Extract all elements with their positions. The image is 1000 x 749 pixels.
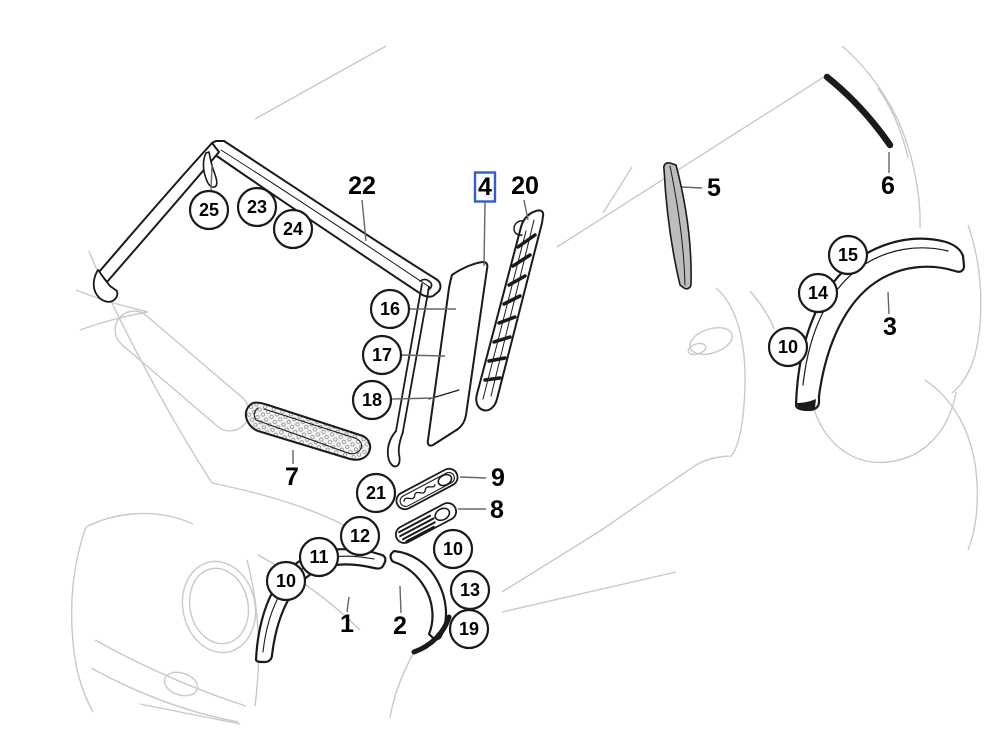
cowl-line xyxy=(255,46,386,119)
part-label-5[interactable]: 5 xyxy=(707,174,721,202)
callout-balloon-16[interactable]: 16 xyxy=(371,290,409,328)
roof-line xyxy=(557,75,827,247)
callout-balloon-21[interactable]: 21 xyxy=(357,474,395,512)
window-edge xyxy=(603,167,632,213)
part-number[interactable]: 8 xyxy=(490,496,504,524)
part-number[interactable]: 20 xyxy=(511,172,539,200)
callout-balloon-10[interactable]: 10 xyxy=(267,562,305,600)
balloon-number: 25 xyxy=(199,200,219,220)
leader-9 xyxy=(460,477,486,478)
fender-front-edge xyxy=(247,560,258,706)
callout-balloon-14[interactable]: 14 xyxy=(799,274,837,312)
part-7-hood-grille[interactable] xyxy=(246,403,370,460)
leader-2 xyxy=(400,586,401,613)
part-20-inner-2 xyxy=(483,231,526,399)
balloon-number: 14 xyxy=(808,283,828,303)
callout-balloon-11[interactable]: 11 xyxy=(300,538,338,576)
part-number[interactable]: 6 xyxy=(881,172,895,200)
balloon-number: 15 xyxy=(838,245,858,265)
balloon-number: 13 xyxy=(460,580,480,600)
balloon-number: 17 xyxy=(372,345,392,365)
balloon-number: 12 xyxy=(350,526,370,546)
parts-artwork xyxy=(94,77,964,662)
part-number[interactable]: 4 xyxy=(478,173,492,201)
part-label-2[interactable]: 2 xyxy=(393,612,407,640)
part-number[interactable]: 2 xyxy=(393,612,407,640)
parts-diagram-page: 2523241617182112111010131915141022420563… xyxy=(0,0,1000,749)
part-number[interactable]: 22 xyxy=(348,172,376,200)
rear-corner-edge xyxy=(925,380,977,550)
balloon-number: 11 xyxy=(309,547,328,567)
part-label-4[interactable]: 4 xyxy=(475,173,495,202)
callout-balloon-23[interactable]: 23 xyxy=(238,188,276,226)
part-number[interactable]: 3 xyxy=(883,313,897,341)
sill-line-lower xyxy=(502,572,676,612)
rear-window-edge xyxy=(878,88,908,158)
annotations-layer: 2523241617182112111010131915141022420563… xyxy=(190,172,897,648)
arch-lower-line xyxy=(390,652,414,718)
callout-balloon-19[interactable]: 19 xyxy=(450,610,488,648)
balloon-number: 10 xyxy=(443,539,463,559)
callout-balloon-24[interactable]: 24 xyxy=(274,210,312,248)
grille-line xyxy=(140,704,240,724)
part-number[interactable]: 7 xyxy=(285,463,299,491)
callout-balloon-13[interactable]: 13 xyxy=(451,571,489,609)
part-20-inner-1 xyxy=(491,220,534,396)
part-label-22[interactable]: 22 xyxy=(348,172,376,200)
part-6-c-pillar-trim[interactable] xyxy=(827,77,890,145)
part-3-rear-arch-trim[interactable] xyxy=(796,239,964,410)
leader-4 xyxy=(484,202,485,266)
rear-wheel-opening xyxy=(812,392,956,462)
balloon-number: 21 xyxy=(366,483,386,503)
rocker-line xyxy=(600,456,729,531)
door-trailing-edge xyxy=(716,288,745,457)
balloon-number: 18 xyxy=(362,390,382,410)
callout-balloon-15[interactable]: 15 xyxy=(829,236,867,274)
part-label-7[interactable]: 7 xyxy=(285,463,299,491)
hood-scoop-recess xyxy=(107,303,256,438)
part-17-strip-foot xyxy=(388,431,403,466)
leader-18 xyxy=(391,398,435,399)
balloon-number: 16 xyxy=(380,299,400,319)
sill-line-upper xyxy=(502,531,600,592)
leader-5 xyxy=(682,187,702,188)
callout-balloon-25[interactable]: 25 xyxy=(190,191,228,229)
part-number[interactable]: 1 xyxy=(340,610,354,638)
callout-balloon-10[interactable]: 10 xyxy=(434,530,472,568)
fog-light xyxy=(161,668,200,699)
part-label-1[interactable]: 1 xyxy=(340,610,354,638)
leader-17 xyxy=(401,355,445,356)
part-number[interactable]: 5 xyxy=(707,174,721,202)
cowl-edge-2 xyxy=(80,312,148,330)
part-label-3[interactable]: 3 xyxy=(883,313,897,341)
fender-line-left xyxy=(86,513,193,527)
part-label-9[interactable]: 9 xyxy=(491,464,505,492)
balloon-number: 10 xyxy=(276,571,296,591)
balloon-number: 24 xyxy=(283,219,303,239)
callout-balloon-17[interactable]: 17 xyxy=(363,336,401,374)
part-label-8[interactable]: 8 xyxy=(490,496,504,524)
callout-balloon-18[interactable]: 18 xyxy=(353,381,391,419)
callout-balloon-12[interactable]: 12 xyxy=(341,517,379,555)
part-label-6[interactable]: 6 xyxy=(881,172,895,200)
part-label-20[interactable]: 20 xyxy=(511,172,539,200)
balloon-number: 19 xyxy=(459,619,479,639)
leader-25 xyxy=(211,165,212,191)
balloon-number: 10 xyxy=(778,337,798,357)
front-bumper-edge xyxy=(72,527,93,712)
callout-balloon-10[interactable]: 10 xyxy=(769,328,807,366)
part-number[interactable]: 9 xyxy=(491,464,505,492)
rung xyxy=(485,378,500,380)
part-5-b-pillar-trim[interactable] xyxy=(664,163,691,289)
door-handle xyxy=(686,323,735,359)
door-top-edge xyxy=(750,291,774,329)
balloon-number: 23 xyxy=(247,197,267,217)
leader-3 xyxy=(888,292,889,314)
